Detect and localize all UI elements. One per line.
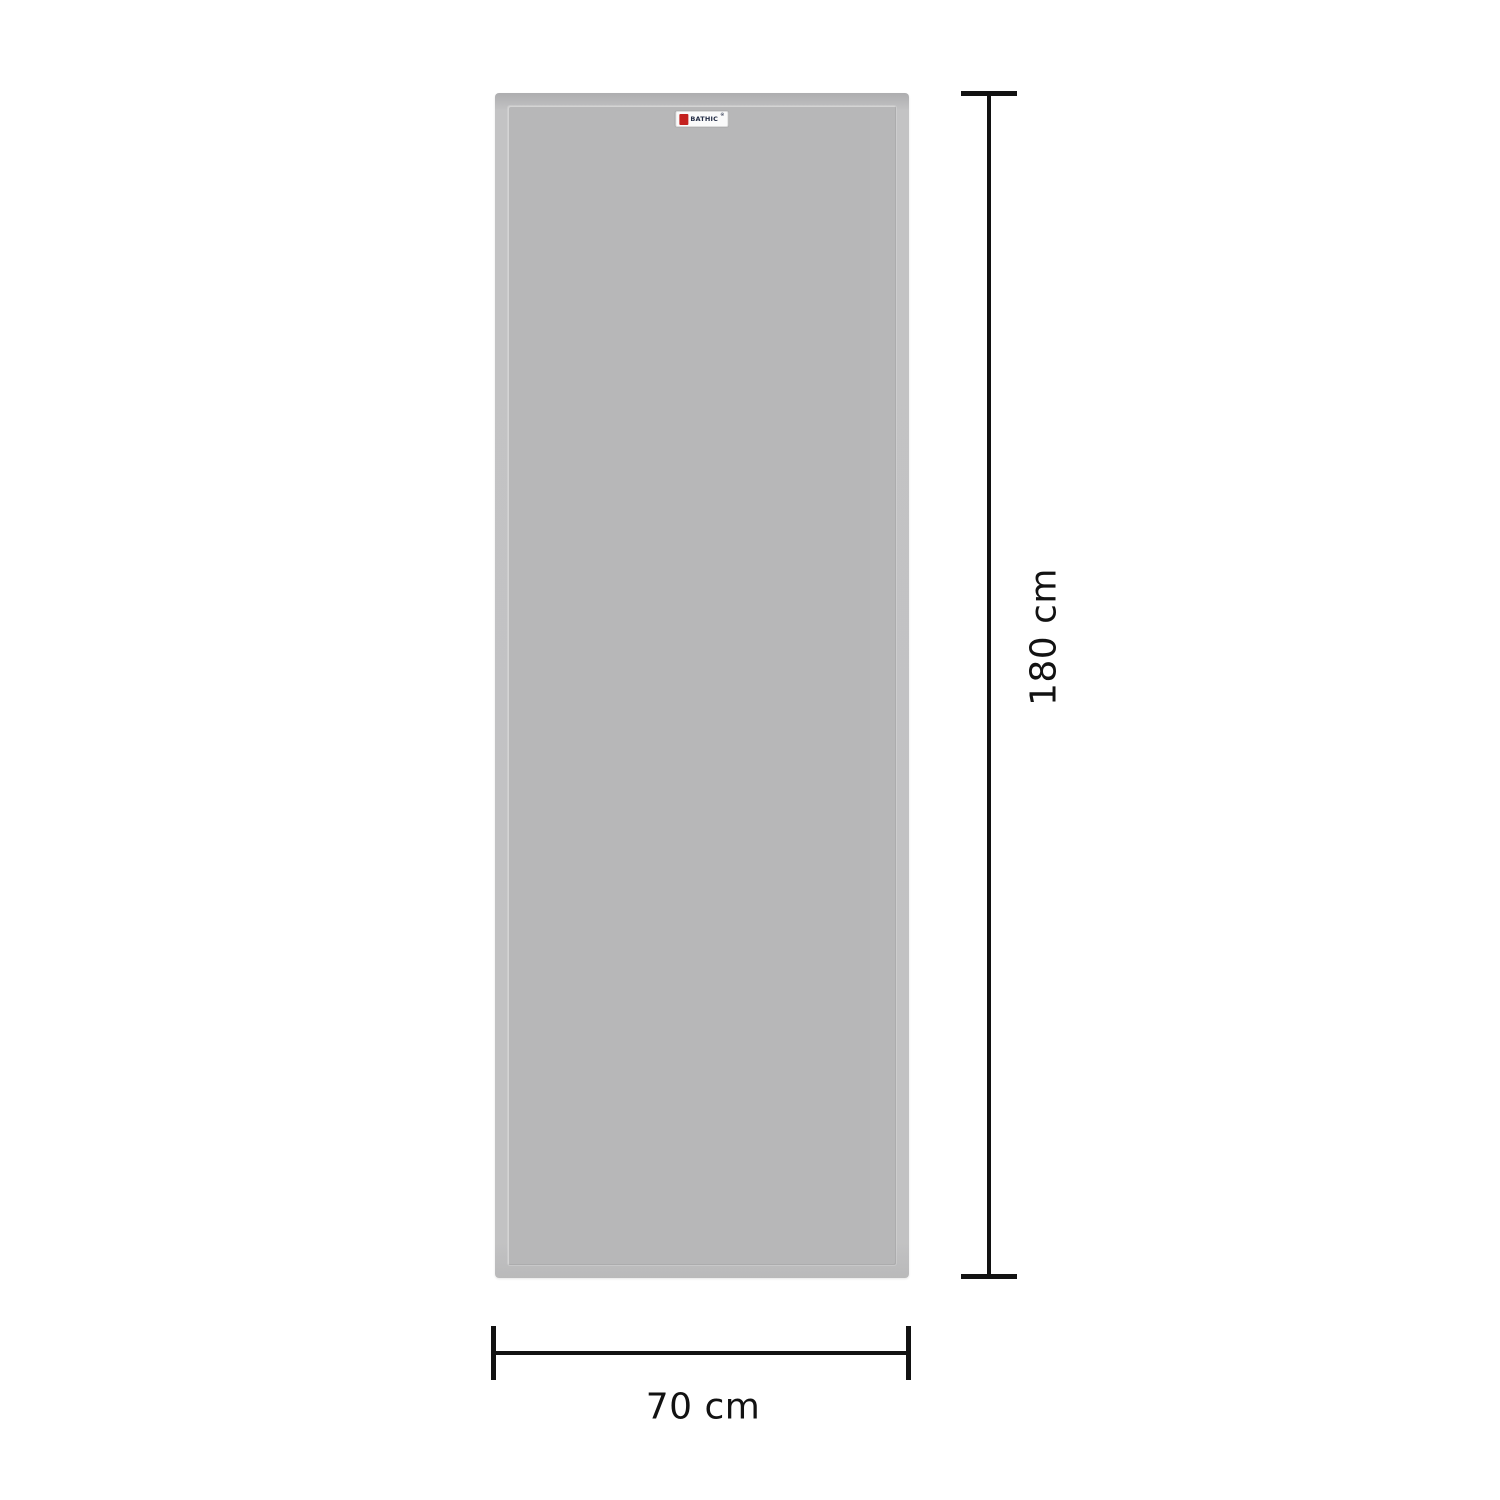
door-panel: BATHIC ® bbox=[495, 93, 909, 1278]
brand-name: BATHIC bbox=[690, 116, 718, 123]
registered-trademark-mark: ® bbox=[720, 114, 725, 119]
brand-logo-icon bbox=[679, 114, 688, 125]
height-dimension-label: 180 cm bbox=[1024, 568, 1065, 706]
width-dimension-right-cap bbox=[906, 1326, 911, 1380]
brand-label: BATHIC ® bbox=[675, 111, 728, 127]
width-dimension-line bbox=[493, 1351, 910, 1355]
width-dimension-label: 70 cm bbox=[646, 1387, 761, 1428]
door-panel-bevel bbox=[508, 106, 896, 1265]
height-dimension-top-cap bbox=[961, 91, 1017, 96]
product-dimension-diagram: BATHIC ® 180 cm 70 cm bbox=[0, 0, 1500, 1500]
width-dimension-left-cap bbox=[491, 1326, 496, 1380]
height-dimension-line bbox=[987, 93, 991, 1277]
height-dimension-bottom-cap bbox=[961, 1274, 1017, 1279]
